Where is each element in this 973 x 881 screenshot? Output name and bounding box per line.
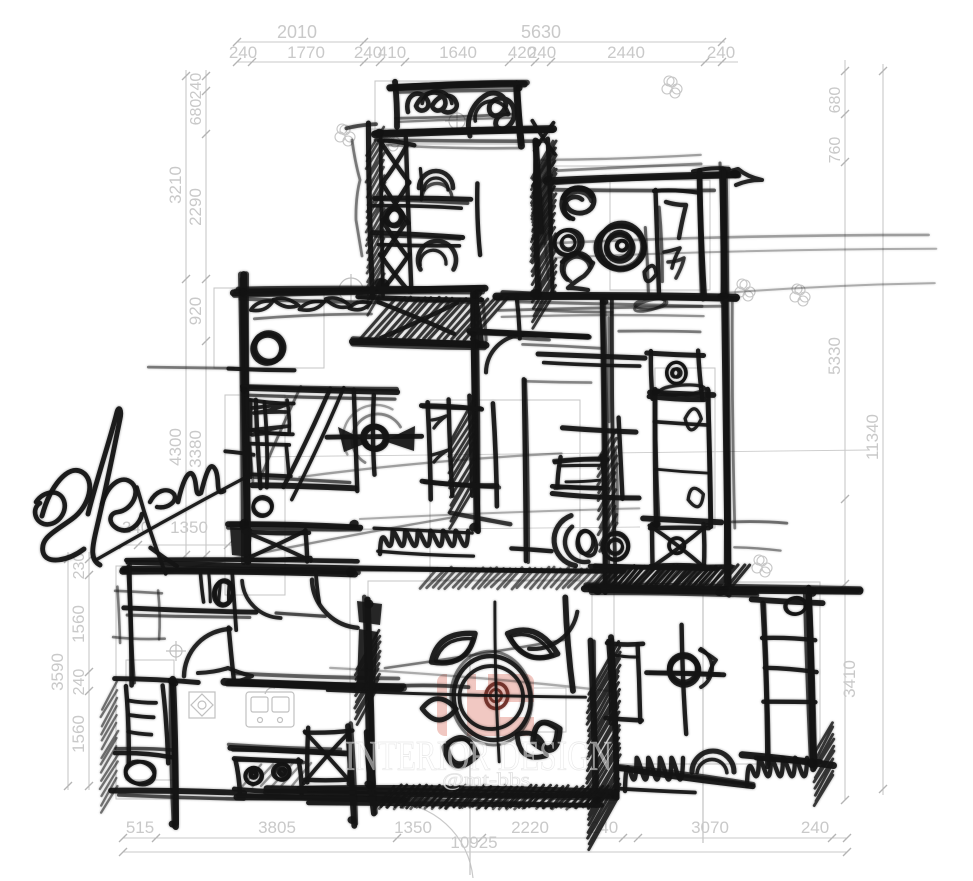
- svg-text:4300: 4300: [166, 428, 185, 466]
- svg-text:3410: 3410: [840, 660, 859, 698]
- svg-text:2010: 2010: [277, 22, 317, 42]
- svg-text:1560: 1560: [69, 715, 88, 753]
- svg-text:240: 240: [801, 818, 829, 837]
- svg-text:5630: 5630: [521, 22, 561, 42]
- svg-text:1640: 1640: [439, 43, 477, 62]
- svg-text:5330: 5330: [825, 337, 844, 375]
- svg-text:11340: 11340: [863, 414, 882, 460]
- svg-text:3805: 3805: [258, 818, 296, 837]
- svg-text:1770: 1770: [287, 43, 325, 62]
- svg-text:680: 680: [188, 99, 205, 126]
- svg-text:240: 240: [188, 73, 205, 100]
- svg-text:240: 240: [71, 669, 88, 696]
- svg-text:3210: 3210: [166, 166, 185, 204]
- svg-text:3380: 3380: [186, 430, 205, 468]
- svg-text:515: 515: [126, 818, 154, 837]
- svg-text:10925: 10925: [450, 833, 497, 852]
- svg-text:240: 240: [528, 43, 556, 62]
- svg-text:2440: 2440: [607, 43, 645, 62]
- svg-text:2290: 2290: [186, 188, 205, 226]
- svg-text:240: 240: [229, 43, 257, 62]
- svg-text:1350: 1350: [170, 518, 208, 537]
- svg-text:410: 410: [378, 43, 406, 62]
- svg-text:920: 920: [186, 297, 205, 325]
- svg-text:3070: 3070: [691, 818, 729, 837]
- svg-text:1560: 1560: [69, 605, 88, 643]
- svg-text:@mt-bbs: @mt-bbs: [442, 770, 530, 791]
- svg-text:240: 240: [707, 43, 735, 62]
- svg-text:1350: 1350: [394, 818, 432, 837]
- svg-text:680: 680: [827, 87, 844, 114]
- svg-text:2220: 2220: [511, 818, 549, 837]
- svg-text:760: 760: [827, 137, 844, 164]
- svg-text:3590: 3590: [48, 653, 67, 691]
